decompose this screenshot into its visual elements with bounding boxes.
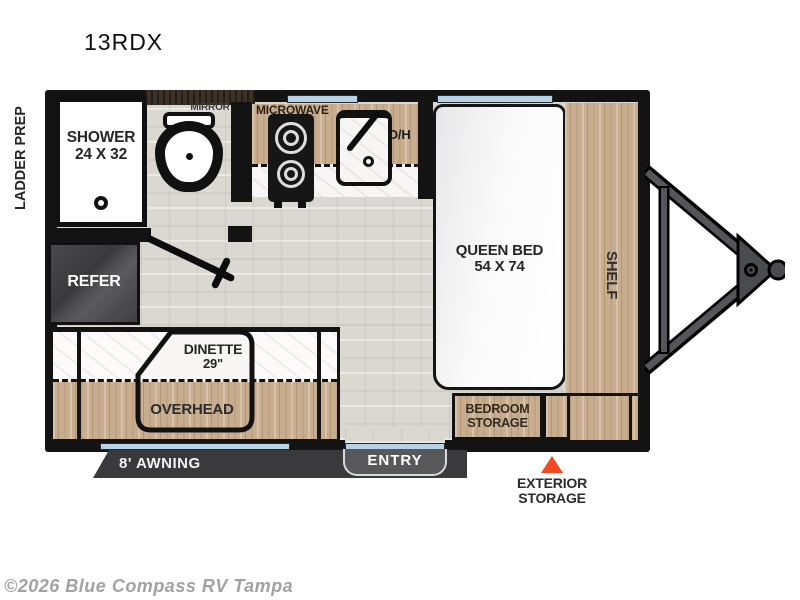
cabinet-divider-v bbox=[629, 393, 632, 440]
refrigerator-label: REFER bbox=[51, 273, 137, 290]
page-title: 13RDX bbox=[84, 30, 163, 55]
floorplan-page: 13RDX LADDER PREP SHOWER 24 X 32 MIRROR bbox=[0, 0, 800, 600]
bedroom-window bbox=[437, 95, 553, 103]
shower-drain bbox=[94, 196, 108, 210]
watermark: ©2026 Blue Compass RV Tampa bbox=[4, 576, 293, 597]
bathroom-wall bbox=[231, 102, 252, 202]
exterior-storage-marker bbox=[541, 456, 563, 473]
shower: SHOWER 24 X 32 bbox=[55, 97, 147, 227]
dinette-label: DINETTE bbox=[153, 342, 273, 357]
kitchen-bed-wall bbox=[418, 102, 433, 197]
cabinet-divider-h bbox=[570, 393, 638, 396]
sink bbox=[336, 110, 392, 186]
overhead-label: OVERHEAD bbox=[132, 402, 252, 418]
wet-bath-wall bbox=[45, 228, 151, 242]
queen-bed-label: QUEEN BED bbox=[436, 243, 563, 259]
dinette-dashed-line bbox=[53, 379, 337, 385]
floorplan-body: SHOWER 24 X 32 MIRROR REFER bbox=[45, 90, 650, 452]
ladder-prep-label: LADDER PREP bbox=[14, 96, 42, 220]
bedroom-storage-label2: STORAGE bbox=[455, 417, 540, 431]
trailer-hitch bbox=[645, 158, 785, 382]
exterior-storage-label2: STORAGE bbox=[494, 491, 610, 506]
kitchen-counter: MICROWAVE O/H bbox=[252, 104, 420, 197]
queen-bed-size-label: 54 X 74 bbox=[436, 259, 563, 275]
entry-door: ENTRY bbox=[343, 449, 447, 476]
toilet bbox=[155, 112, 223, 192]
shower-size-label: 24 X 32 bbox=[60, 147, 142, 164]
refrigerator: REFER bbox=[48, 242, 140, 325]
entry-opening bbox=[345, 428, 445, 443]
shelf-label: SHELF bbox=[583, 225, 619, 325]
dinette-size-label: 29" bbox=[153, 357, 273, 371]
storage-cabinet bbox=[543, 393, 570, 440]
bedroom-storage-label1: BEDROOM bbox=[455, 403, 540, 417]
exterior-storage-label1: EXTERIOR bbox=[494, 476, 610, 491]
dinette-exterior-window bbox=[100, 443, 290, 450]
dinette: DINETTE 29" OVERHEAD bbox=[45, 327, 340, 442]
kitchen-window bbox=[287, 95, 358, 103]
cooktop bbox=[268, 114, 314, 202]
bedroom-storage: BEDROOM STORAGE bbox=[452, 393, 543, 440]
shower-label: SHOWER bbox=[60, 130, 142, 147]
queen-bed: QUEEN BED 54 X 74 bbox=[433, 104, 566, 390]
entry-label: ENTRY bbox=[345, 453, 445, 469]
door-frame bbox=[228, 226, 252, 242]
awning-label: 8' AWNING bbox=[119, 456, 201, 472]
